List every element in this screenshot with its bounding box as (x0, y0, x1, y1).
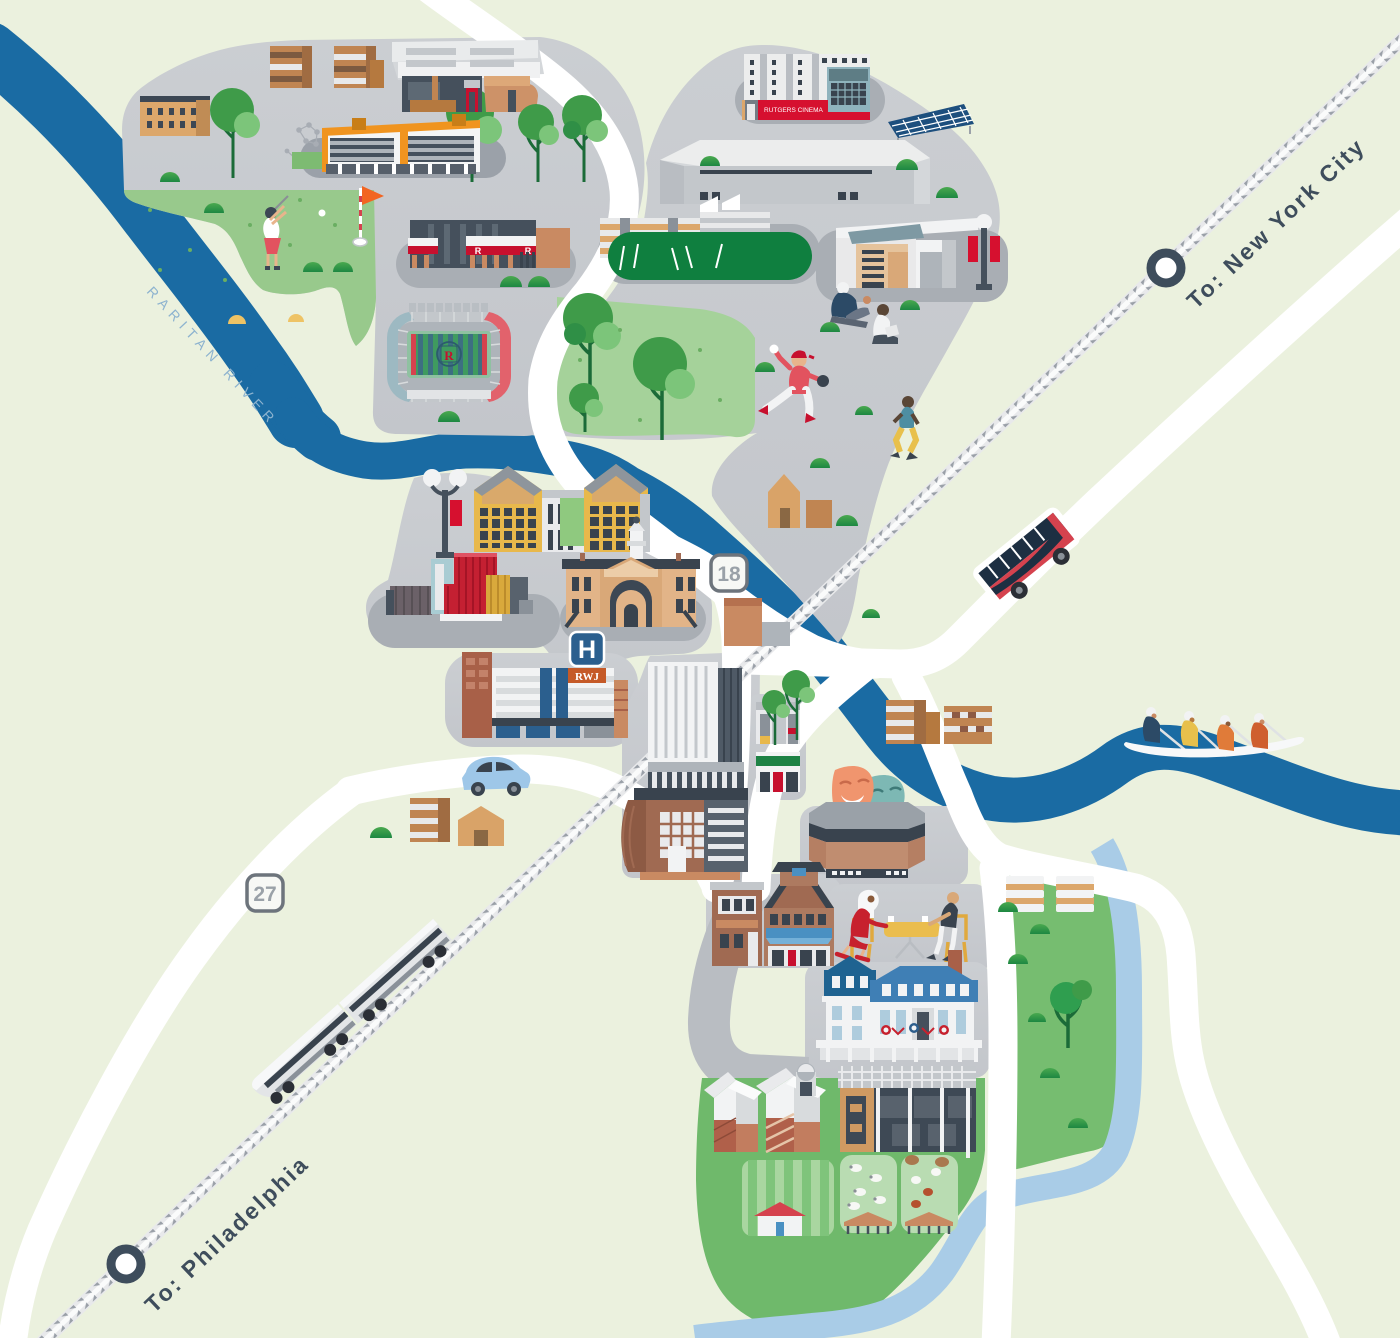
svg-text:R: R (475, 246, 482, 256)
svg-text:RWJ: RWJ (575, 671, 600, 683)
svg-text:18: 18 (717, 563, 741, 586)
svg-text:27: 27 (253, 883, 276, 906)
svg-text:R: R (444, 348, 454, 363)
svg-text:RUTGERS CINEMA: RUTGERS CINEMA (764, 107, 824, 114)
svg-text:H: H (578, 636, 596, 664)
